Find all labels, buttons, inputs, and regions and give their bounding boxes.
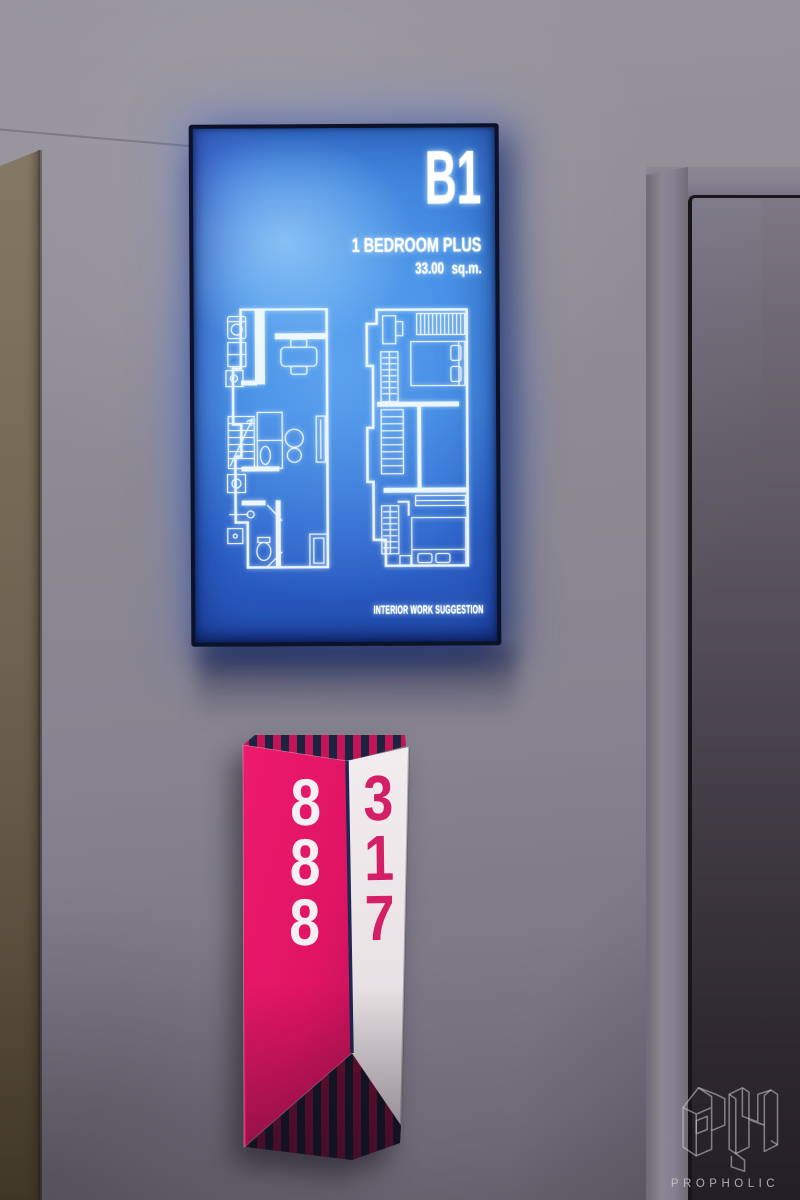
unit-area-label: 33.00 sq.m.	[415, 260, 482, 278]
room-number-side: 317	[357, 770, 401, 947]
floor-plan-right-icon	[367, 309, 468, 566]
lightbox-screen: B1 1 BEDROOM PLUS 33.00 sq.m.	[193, 127, 498, 643]
door-light-reflection	[692, 198, 762, 698]
unit-type-label: 1 BEDROOM PLUS	[352, 234, 482, 258]
interior-note: INTERIOR WORK SUGGESTION	[373, 602, 483, 617]
lightbox-shadow	[196, 646, 518, 720]
door-frame-jamb	[646, 167, 688, 1200]
unit-code: B1	[424, 147, 481, 209]
propholic-watermark: PROPHOLIC	[650, 1060, 800, 1200]
hallway-photo: B1 1 BEDROOM PLUS 33.00 sq.m.	[0, 0, 800, 1200]
room-number-front: 888	[283, 774, 328, 951]
left-wall-corner-edge	[38, 150, 42, 1200]
floor-plans-drawing	[221, 307, 470, 576]
propholic-logo-icon	[672, 1068, 782, 1180]
left-wall-corner	[0, 150, 40, 1200]
room-number-sign: 888 317	[225, 728, 425, 1193]
floor-plan-left-icon	[226, 309, 328, 568]
unit-lightbox-sign: B1 1 BEDROOM PLUS 33.00 sq.m.	[189, 123, 502, 647]
propholic-brand-text: PROPHOLIC	[652, 1178, 798, 1190]
